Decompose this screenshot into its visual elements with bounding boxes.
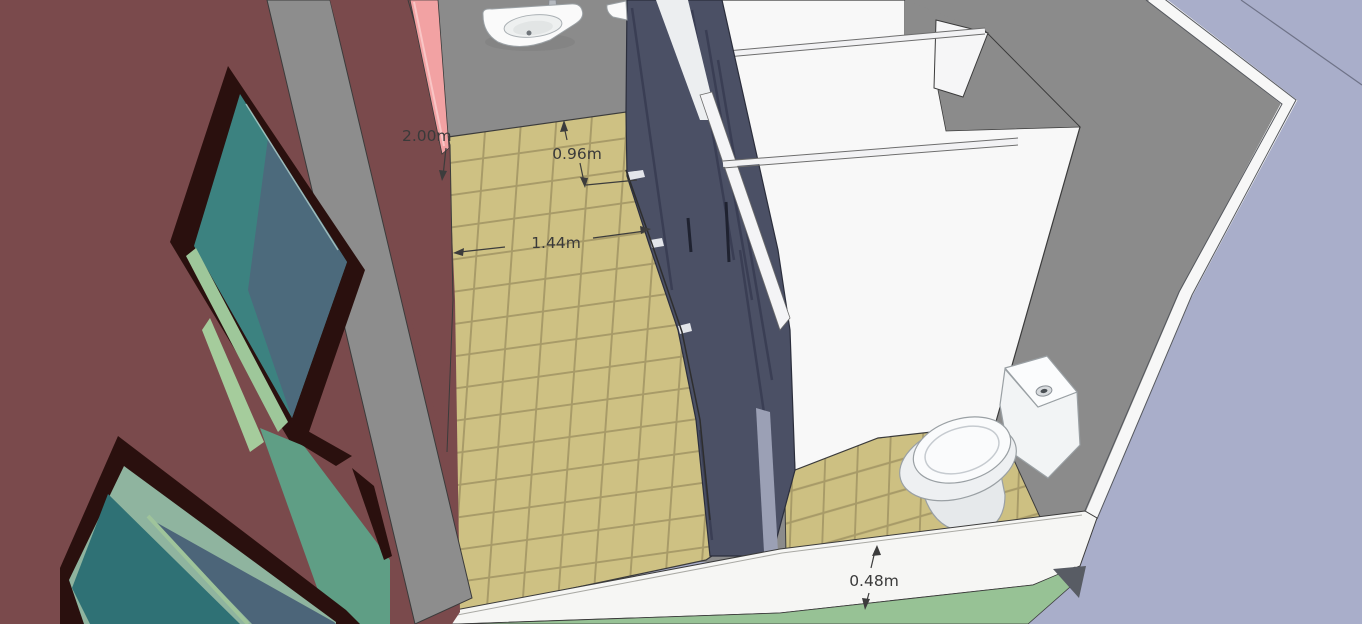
- dim-label-144m: 1.44m: [531, 234, 581, 252]
- dim-label-048m: 0.48m: [849, 572, 899, 590]
- restroom-3d-render: 2.00m 0.96m 1.44m 0.48m: [0, 0, 1362, 624]
- dim-label-2m: 2.00m: [402, 127, 452, 145]
- sink-drain: [527, 31, 532, 36]
- viewport-3d: 2.00m 0.96m 1.44m 0.48m: [0, 0, 1362, 624]
- dim-label-096m: 0.96m: [552, 145, 602, 163]
